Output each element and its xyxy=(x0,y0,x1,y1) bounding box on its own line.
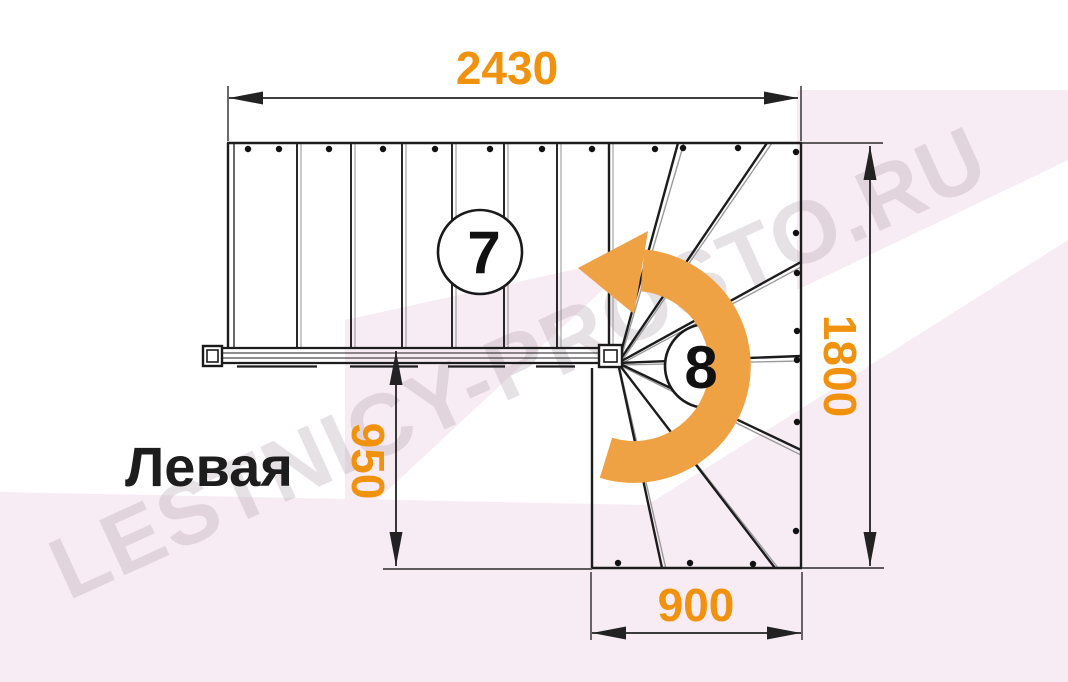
fastener-dot xyxy=(794,419,800,425)
fastener-dot xyxy=(539,146,545,152)
fastener-dot xyxy=(794,357,800,363)
fastener-dot xyxy=(735,145,741,151)
winder-step-count-label: 8 xyxy=(684,334,717,401)
fastener-dot xyxy=(326,146,332,152)
fastener-dot xyxy=(680,145,686,151)
fastener-dot xyxy=(750,561,756,567)
fastener-dot xyxy=(276,146,282,152)
dimension-value-inner: 950 xyxy=(342,423,394,500)
dimension-arrowhead xyxy=(229,92,263,105)
plan-title: Левая xyxy=(125,435,293,498)
fastener-dot xyxy=(487,146,493,152)
staircase-plan-canvas: LESTNICY-PROSTO.RU xyxy=(0,0,1068,682)
staircase-plan-svg: LESTNICY-PROSTO.RU xyxy=(0,0,1068,682)
fastener-dot xyxy=(245,146,251,152)
flight-step-count-label: 7 xyxy=(467,219,500,286)
dimension-top: 2430 xyxy=(229,42,798,105)
fastener-dot xyxy=(794,328,800,334)
dimension-value-right: 1800 xyxy=(814,315,866,417)
fastener-dot xyxy=(794,270,800,276)
fastener-dot xyxy=(432,146,438,152)
fastener-dot xyxy=(652,146,658,152)
fastener-dot xyxy=(793,528,799,534)
fastener-dot xyxy=(615,560,621,566)
fastener-dot xyxy=(687,560,693,566)
dimension-arrowhead xyxy=(764,92,798,105)
newel-post-center-inner xyxy=(604,350,617,362)
dimension-value-top: 2430 xyxy=(456,42,558,94)
fastener-dot xyxy=(380,146,386,152)
fastener-dot xyxy=(589,146,595,152)
fastener-dot xyxy=(793,230,799,236)
newel-post-left-inner xyxy=(207,350,218,362)
dimension-value-bottom: 900 xyxy=(658,579,735,631)
fastener-dot xyxy=(793,149,799,155)
